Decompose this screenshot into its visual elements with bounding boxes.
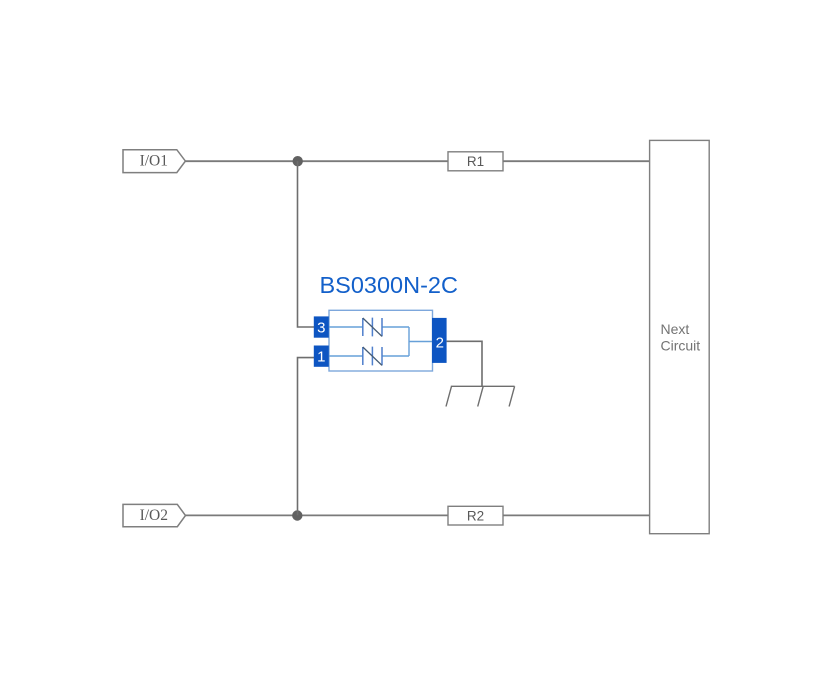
svg-text:I/O2: I/O2	[140, 507, 168, 524]
svg-text:2: 2	[436, 335, 444, 352]
svg-text:3: 3	[317, 320, 325, 337]
svg-text:R2: R2	[467, 508, 484, 523]
svg-text:R1: R1	[467, 154, 484, 169]
svg-text:Circuit: Circuit	[661, 338, 701, 354]
svg-text:BS0300N-2C: BS0300N-2C	[320, 272, 458, 298]
svg-text:I/O1: I/O1	[140, 152, 168, 169]
svg-text:Next: Next	[661, 321, 690, 337]
svg-text:1: 1	[317, 349, 325, 366]
